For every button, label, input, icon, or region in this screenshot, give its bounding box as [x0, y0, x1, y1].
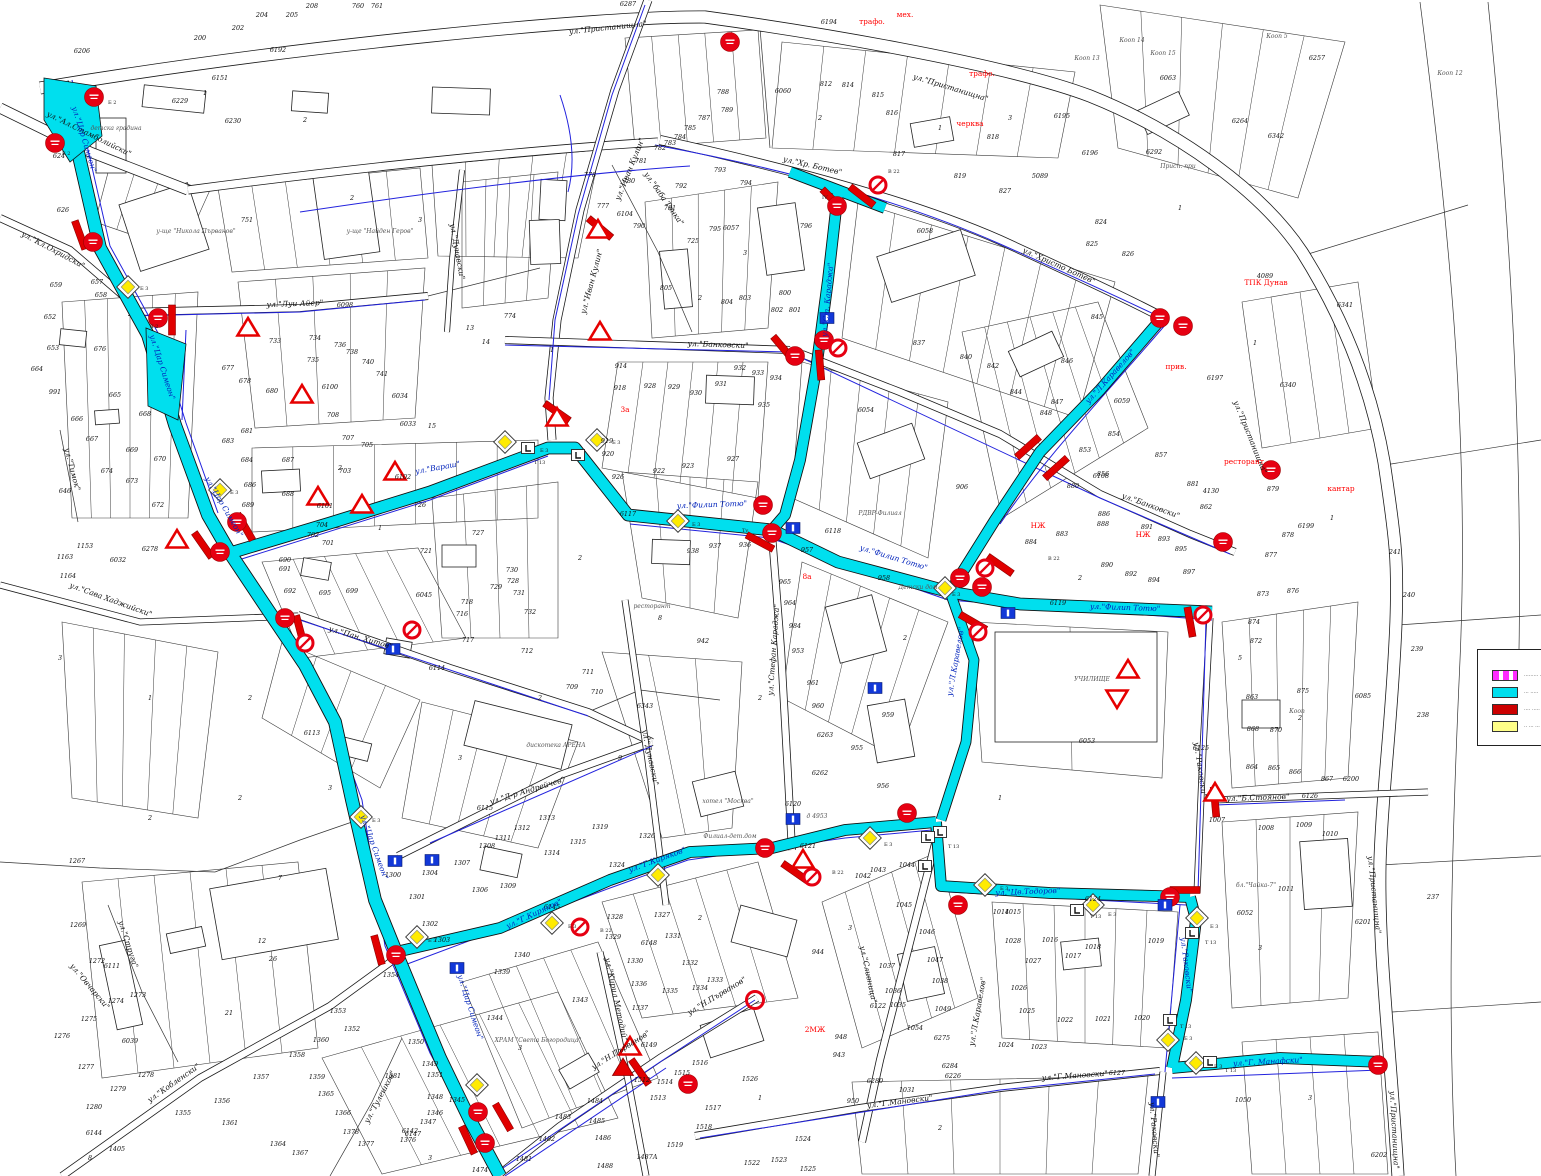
- svg-text:920: 920: [602, 450, 614, 458]
- svg-text:6117: 6117: [620, 510, 637, 518]
- svg-text:935: 935: [758, 401, 770, 409]
- svg-text:670: 670: [154, 455, 166, 463]
- svg-text:1319: 1319: [592, 823, 608, 831]
- svg-text:3а: 3а: [620, 405, 630, 414]
- svg-text:931: 931: [715, 380, 727, 388]
- svg-text:6149: 6149: [641, 1041, 657, 1049]
- road-closure-bar-icon: [169, 305, 176, 335]
- sign-plate-icon: [922, 832, 935, 843]
- svg-text:6230: 6230: [225, 117, 241, 125]
- svg-text:1: 1: [550, 346, 554, 354]
- svg-text:6058: 6058: [917, 227, 933, 235]
- svg-text:6059: 6059: [1114, 397, 1130, 405]
- svg-text:2: 2: [1297, 714, 1302, 722]
- svg-text:709: 709: [566, 683, 578, 691]
- svg-text:1329: 1329: [605, 933, 621, 941]
- svg-text:1518: 1518: [696, 1123, 712, 1131]
- svg-text:6200: 6200: [1343, 775, 1359, 783]
- svg-text:6085: 6085: [1355, 692, 1371, 700]
- svg-text:6340: 6340: [1280, 381, 1296, 389]
- svg-text:801: 801: [789, 306, 801, 314]
- svg-text:1043: 1043: [870, 866, 886, 874]
- svg-text:883: 883: [1056, 530, 1068, 538]
- svg-text:1337: 1337: [632, 1004, 649, 1012]
- svg-text:812: 812: [820, 80, 832, 88]
- svg-text:1358: 1358: [289, 1051, 305, 1059]
- svg-text:702: 702: [307, 531, 319, 539]
- svg-text:ТПК Дунав: ТПК Дунав: [1244, 278, 1287, 287]
- city-traffic-utility-map[interactable]: 2002022042052086206619261516229623075162…: [0, 0, 1541, 1176]
- svg-text:873: 873: [1257, 590, 1269, 598]
- red-point-sign-icon: [756, 839, 775, 858]
- road-closure-bar-icon: [492, 1102, 513, 1131]
- svg-text:1330: 1330: [627, 957, 643, 965]
- svg-text:866: 866: [1289, 768, 1301, 776]
- svg-text:1: 1: [1253, 339, 1257, 347]
- svg-text:6292: 6292: [1146, 148, 1162, 156]
- svg-text:684: 684: [241, 456, 253, 464]
- svg-text:Т 13: Т 13: [534, 460, 545, 466]
- svg-text:864: 864: [1246, 763, 1258, 771]
- svg-text:690: 690: [279, 556, 291, 564]
- svg-text:д 4953: д 4953: [807, 813, 828, 820]
- svg-text:857: 857: [1155, 451, 1168, 459]
- svg-text:1349: 1349: [422, 1060, 438, 1068]
- svg-text:детска градина: детска градина: [90, 125, 142, 132]
- svg-text:1054: 1054: [907, 1024, 923, 1032]
- svg-text:1042: 1042: [855, 872, 871, 880]
- svg-text:1523: 1523: [771, 1156, 787, 1164]
- red-point-sign-icon: [387, 946, 406, 965]
- svg-text:1484: 1484: [587, 1097, 603, 1105]
- svg-text:957: 957: [801, 546, 814, 554]
- svg-text:760: 760: [352, 2, 364, 10]
- svg-text:1019: 1019: [1148, 937, 1164, 945]
- no-entry-sign-icon: [1195, 607, 1211, 623]
- svg-text:1017: 1017: [1065, 952, 1082, 960]
- svg-text:1022: 1022: [1057, 1016, 1073, 1024]
- svg-text:666: 666: [71, 415, 83, 423]
- svg-text:6054: 6054: [858, 406, 874, 414]
- svg-text:1335: 1335: [662, 987, 678, 995]
- svg-text:1301: 1301: [409, 893, 425, 901]
- svg-text:6262: 6262: [812, 769, 828, 777]
- red-point-sign-icon: [763, 524, 782, 543]
- svg-text:1345: 1345: [449, 1096, 465, 1104]
- svg-text:777: 777: [597, 202, 610, 210]
- svg-text:1036: 1036: [885, 987, 901, 995]
- svg-text:877: 877: [1265, 551, 1278, 559]
- svg-text:6102: 6102: [395, 473, 411, 481]
- svg-text:699: 699: [346, 587, 358, 595]
- svg-text:3: 3: [1008, 114, 1012, 122]
- svg-text:668: 668: [139, 410, 151, 418]
- svg-text:6280: 6280: [867, 1077, 883, 1085]
- svg-text:725: 725: [687, 237, 699, 245]
- svg-text:950: 950: [847, 1097, 859, 1105]
- svg-text:6287: 6287: [620, 0, 637, 8]
- blue-info-sign-icon: [1158, 900, 1172, 911]
- svg-text:729: 729: [490, 583, 502, 591]
- svg-text:984: 984: [789, 622, 801, 630]
- svg-text:Б 3: Б 3: [372, 818, 380, 824]
- svg-text:800: 800: [779, 289, 791, 297]
- svg-text:1045: 1045: [896, 901, 912, 909]
- svg-text:692: 692: [284, 587, 296, 595]
- svg-text:785: 785: [684, 124, 696, 132]
- svg-text:736: 736: [334, 341, 346, 349]
- svg-text:1525: 1525: [800, 1165, 816, 1173]
- svg-text:1037: 1037: [879, 962, 896, 970]
- svg-text:1474: 1474: [472, 1166, 488, 1174]
- svg-text:741: 741: [376, 370, 388, 378]
- svg-text:8: 8: [658, 614, 662, 622]
- svg-text:878: 878: [1282, 531, 1294, 539]
- svg-text:6341: 6341: [1337, 301, 1353, 309]
- give-way-sign-icon: [167, 530, 188, 548]
- svg-text:1522: 1522: [744, 1159, 760, 1167]
- svg-text:мех.: мех.: [897, 10, 914, 19]
- give-way-sign-icon: [590, 322, 611, 340]
- svg-text:6127: 6127: [1109, 1069, 1126, 1077]
- svg-text:ресторант: ресторант: [1224, 457, 1264, 466]
- svg-text:879: 879: [1267, 485, 1279, 493]
- svg-text:6199: 6199: [1298, 522, 1314, 530]
- cyan-route-network: [44, 78, 1382, 1176]
- svg-text:1348: 1348: [427, 1093, 443, 1101]
- svg-text:у-ще "Никола Първанов": у-ще "Никола Първанов": [155, 228, 236, 235]
- svg-text:1278: 1278: [138, 1071, 154, 1079]
- svg-text:1: 1: [998, 794, 1002, 802]
- svg-text:6264: 6264: [1232, 117, 1248, 125]
- svg-text:646: 646: [59, 487, 71, 495]
- red-point-sign-icon: [1151, 309, 1170, 328]
- svg-text:805: 805: [660, 284, 672, 292]
- svg-text:1035: 1035: [890, 1001, 906, 1009]
- svg-text:6060: 6060: [775, 87, 791, 95]
- svg-text:1361: 1361: [222, 1119, 238, 1127]
- svg-text:705: 705: [361, 441, 373, 449]
- svg-text:938: 938: [687, 547, 699, 555]
- give-way-sign-icon: [292, 385, 313, 403]
- no-entry-sign-icon: [297, 635, 313, 651]
- svg-text:728: 728: [507, 577, 519, 585]
- svg-text:ул."баба Тонка": ул."баба Тонка": [642, 169, 686, 227]
- svg-text:6104: 6104: [617, 210, 633, 218]
- svg-text:ул."Сливница": ул."Сливница": [858, 944, 879, 1004]
- svg-text:1309: 1309: [500, 882, 516, 890]
- svg-text:6195: 6195: [1054, 112, 1070, 120]
- svg-text:21: 21: [224, 1009, 233, 1017]
- svg-text:2МЖ: 2МЖ: [805, 1025, 826, 1034]
- svg-text:Т 13: Т 13: [948, 844, 959, 850]
- sign-plate-icon: [1164, 1015, 1177, 1026]
- svg-text:1364: 1364: [270, 1140, 286, 1148]
- svg-text:1512: 1512: [634, 1076, 650, 1084]
- sign-plate-icon: [522, 443, 535, 454]
- svg-text:868: 868: [1247, 725, 1259, 733]
- svg-text:880: 880: [1067, 482, 1079, 490]
- svg-text:782: 782: [654, 144, 666, 152]
- svg-text:Филиал-дет.дом: Филиал-дет.дом: [703, 833, 756, 840]
- map-legend: · ····· ········· ··· ··· ····· ···· ···…: [1477, 649, 1541, 746]
- svg-text:1354: 1354: [383, 971, 399, 979]
- svg-text:1357: 1357: [253, 1073, 270, 1081]
- svg-text:12: 12: [258, 937, 266, 945]
- svg-text:IV: IV: [822, 195, 828, 201]
- give-way-sign-icon: [238, 318, 259, 336]
- svg-text:1163: 1163: [57, 553, 73, 561]
- svg-text:1307: 1307: [454, 859, 471, 867]
- svg-text:927: 927: [727, 455, 740, 463]
- svg-text:955: 955: [851, 744, 863, 752]
- svg-text:922: 922: [653, 467, 665, 475]
- svg-text:дискотека АРЕНА: дискотека АРЕНА: [526, 742, 586, 749]
- svg-text:673: 673: [126, 477, 138, 485]
- svg-text:842: 842: [987, 362, 999, 370]
- svg-text:5: 5: [1238, 654, 1242, 662]
- svg-text:6039: 6039: [122, 1037, 138, 1045]
- svg-text:Т 13: Т 13: [1090, 914, 1101, 920]
- svg-text:1: 1: [1178, 204, 1182, 212]
- no-entry-sign-icon: [870, 177, 886, 193]
- svg-text:2: 2: [697, 294, 702, 302]
- svg-text:1482: 1482: [539, 1135, 555, 1143]
- legend-label: ········· ···: [1524, 673, 1541, 679]
- give-way-sign-icon: [793, 850, 814, 868]
- red-point-sign-icon: [1369, 1056, 1388, 1075]
- svg-text:793: 793: [714, 166, 726, 174]
- svg-text:1308: 1308: [479, 842, 495, 850]
- svg-text:890: 890: [1101, 561, 1113, 569]
- svg-text:3: 3: [848, 924, 852, 932]
- svg-text:932: 932: [734, 364, 746, 372]
- svg-text:3: 3: [1308, 1094, 1312, 1102]
- svg-text:6120: 6120: [785, 800, 801, 808]
- svg-text:1280: 1280: [86, 1103, 102, 1111]
- svg-text:Б 3: Б 3: [540, 448, 548, 454]
- svg-text:6053: 6053: [1079, 737, 1095, 745]
- svg-text:6100: 6100: [322, 383, 338, 391]
- svg-text:241: 241: [1388, 548, 1401, 556]
- svg-text:Т 13: Т 13: [1225, 1068, 1236, 1074]
- red-point-sign-icon: [828, 197, 847, 216]
- svg-text:1272: 1272: [89, 957, 105, 965]
- svg-text:Б 3: Б 3: [612, 440, 620, 446]
- svg-text:1519: 1519: [667, 1141, 683, 1149]
- svg-text:686: 686: [244, 481, 256, 489]
- svg-text:6284: 6284: [942, 1062, 958, 1070]
- svg-text:1049: 1049: [935, 1005, 951, 1013]
- svg-text:1276: 1276: [54, 1032, 70, 1040]
- svg-text:кантар: кантар: [1327, 484, 1354, 493]
- legend-item: ········· ···: [1492, 670, 1541, 681]
- svg-text:1026: 1026: [1011, 984, 1027, 992]
- svg-text:961: 961: [807, 679, 819, 687]
- svg-text:803: 803: [739, 294, 751, 302]
- svg-text:691: 691: [279, 565, 291, 573]
- svg-text:1008: 1008: [1258, 824, 1274, 832]
- svg-text:936: 936: [739, 541, 751, 549]
- svg-text:960: 960: [812, 702, 824, 710]
- svg-text:ул."Дунавски": ул."Дунавски": [640, 728, 661, 786]
- svg-text:Б 3: Б 3: [428, 938, 436, 944]
- svg-text:6197: 6197: [1207, 374, 1224, 382]
- svg-text:894: 894: [1148, 576, 1160, 584]
- svg-text:УЧИЛИЩЕ: УЧИЛИЩЕ: [1074, 676, 1110, 683]
- svg-text:687: 687: [282, 456, 295, 464]
- svg-text:1365: 1365: [318, 1090, 334, 1098]
- svg-text:ул."Тулешков": ул."Тулешков": [362, 1069, 398, 1125]
- svg-text:Кооп 14: Кооп 14: [1118, 37, 1144, 44]
- svg-text:3: 3: [458, 754, 462, 762]
- svg-text:1007: 1007: [1209, 816, 1226, 824]
- svg-text:1028: 1028: [1005, 937, 1021, 945]
- give-way-sign-icon: [352, 495, 373, 513]
- svg-text:3: 3: [1258, 944, 1262, 952]
- svg-text:944: 944: [812, 948, 824, 956]
- svg-text:804: 804: [721, 298, 733, 306]
- svg-text:1044: 1044: [899, 861, 915, 869]
- svg-text:1517: 1517: [705, 1104, 722, 1112]
- svg-text:731: 731: [513, 589, 525, 597]
- svg-text:751: 751: [241, 216, 253, 224]
- svg-text:870: 870: [1270, 726, 1282, 734]
- svg-text:1047: 1047: [927, 956, 944, 964]
- svg-text:6257: 6257: [1309, 54, 1326, 62]
- svg-text:1360: 1360: [313, 1036, 329, 1044]
- svg-text:6118: 6118: [825, 527, 841, 535]
- svg-text:712: 712: [521, 647, 533, 655]
- svg-text:1485: 1485: [589, 1117, 605, 1125]
- svg-text:Б 3: Б 3: [1108, 912, 1116, 918]
- svg-text:1302: 1302: [422, 920, 438, 928]
- svg-text:1333: 1333: [707, 976, 723, 984]
- svg-text:740: 740: [362, 358, 374, 366]
- svg-text:3: 3: [518, 1044, 522, 1052]
- red-point-sign-icon: [84, 233, 103, 252]
- svg-text:664: 664: [31, 365, 43, 373]
- svg-text:Б 3: Б 3: [952, 592, 960, 598]
- svg-text:2: 2: [902, 634, 907, 642]
- svg-text:862: 862: [1200, 503, 1212, 511]
- svg-text:956: 956: [877, 782, 889, 790]
- svg-text:1016: 1016: [1042, 936, 1058, 944]
- svg-text:2: 2: [817, 114, 822, 122]
- svg-text:2: 2: [1077, 574, 1082, 582]
- svg-text:704: 704: [316, 521, 328, 529]
- svg-text:991: 991: [49, 388, 61, 396]
- no-entry-sign-icon: [970, 624, 986, 640]
- svg-text:853: 853: [1079, 446, 1091, 454]
- svg-text:824: 824: [1095, 218, 1107, 226]
- svg-text:1164: 1164: [60, 572, 76, 580]
- svg-text:ресторант: ресторант: [633, 603, 670, 610]
- road-closure-bar-icon: [371, 935, 386, 966]
- svg-text:1488: 1488: [597, 1162, 613, 1170]
- svg-text:929: 929: [668, 383, 680, 391]
- svg-text:886: 886: [1098, 510, 1110, 518]
- svg-text:677: 677: [222, 364, 235, 372]
- svg-text:ул."Цар Симеон": ул."Цар Симеон": [455, 972, 485, 1041]
- svg-text:818: 818: [987, 133, 999, 141]
- svg-text:В 22: В 22: [832, 870, 844, 876]
- no-entry-sign-icon: [977, 560, 993, 576]
- svg-text:881: 881: [1187, 480, 1199, 488]
- svg-text:6052: 6052: [1237, 909, 1253, 917]
- blue-info-sign-icon: [1001, 608, 1015, 619]
- svg-text:3: 3: [58, 654, 62, 662]
- svg-text:1313: 1313: [539, 814, 555, 822]
- svg-text:6206: 6206: [74, 47, 90, 55]
- svg-text:1366: 1366: [335, 1109, 351, 1117]
- svg-text:6113: 6113: [304, 729, 320, 737]
- svg-text:6119: 6119: [1050, 599, 1066, 607]
- svg-text:В 22: В 22: [888, 169, 900, 175]
- svg-text:888: 888: [1097, 520, 1109, 528]
- svg-text:6201: 6201: [1355, 918, 1371, 926]
- svg-text:237: 237: [1426, 893, 1440, 901]
- svg-text:845: 845: [1091, 313, 1103, 321]
- svg-text:6263: 6263: [817, 731, 833, 739]
- svg-text:6111: 6111: [104, 962, 120, 970]
- svg-text:Кооп 5: Кооп 5: [1265, 33, 1288, 40]
- svg-text:872: 872: [1250, 637, 1262, 645]
- svg-text:884: 884: [1025, 538, 1037, 546]
- svg-text:6342: 6342: [1268, 132, 1284, 140]
- svg-text:Кооп 12: Кооп 12: [1436, 70, 1462, 77]
- svg-text:трафо.: трафо.: [969, 69, 995, 78]
- svg-text:717: 717: [462, 636, 475, 644]
- svg-text:1356: 1356: [214, 1097, 230, 1105]
- svg-text:1021: 1021: [1095, 1015, 1111, 1023]
- svg-text:837: 837: [913, 339, 926, 347]
- svg-text:1153: 1153: [77, 542, 93, 550]
- legend-swatch-cyan: [1492, 687, 1518, 698]
- no-entry-sign-icon: [830, 340, 846, 356]
- svg-text:721: 721: [420, 547, 432, 555]
- svg-text:1513: 1513: [650, 1094, 666, 1102]
- svg-text:Б 3: Б 3: [140, 286, 148, 292]
- svg-text:1: 1: [758, 1094, 762, 1102]
- svg-text:2: 2: [577, 554, 582, 562]
- svg-text:6192: 6192: [270, 46, 286, 54]
- svg-text:Б 3: Б 3: [568, 924, 576, 930]
- svg-text:Кооп 15: Кооп 15: [1149, 50, 1175, 57]
- sign-plate-icon: [919, 861, 932, 872]
- blue-info-sign-icon: [388, 856, 402, 867]
- sign-plate-icon: [1071, 905, 1084, 916]
- svg-text:1331: 1331: [665, 932, 681, 940]
- svg-text:6033: 6033: [400, 420, 416, 428]
- svg-text:ул."Б.Стоянов": ул."Б.Стоянов": [1225, 792, 1290, 803]
- svg-text:918: 918: [614, 384, 626, 392]
- svg-text:Б 3: Б 3: [1214, 1064, 1222, 1070]
- svg-text:бл."Чайка-7": бл."Чайка-7": [1236, 882, 1276, 889]
- svg-text:6151: 6151: [212, 74, 228, 82]
- svg-text:1010: 1010: [1322, 830, 1338, 838]
- svg-text:1405: 1405: [109, 1145, 125, 1153]
- svg-text:874: 874: [1248, 618, 1260, 626]
- svg-text:895: 895: [1175, 545, 1187, 553]
- svg-text:701: 701: [322, 539, 334, 547]
- svg-text:ХРАМ "Света Богородица": ХРАМ "Света Богородица": [494, 1037, 582, 1044]
- svg-text:707: 707: [342, 434, 355, 442]
- svg-text:658: 658: [95, 291, 107, 299]
- svg-text:689: 689: [242, 501, 254, 509]
- svg-text:1020: 1020: [1134, 1014, 1150, 1022]
- svg-text:205: 205: [285, 11, 298, 19]
